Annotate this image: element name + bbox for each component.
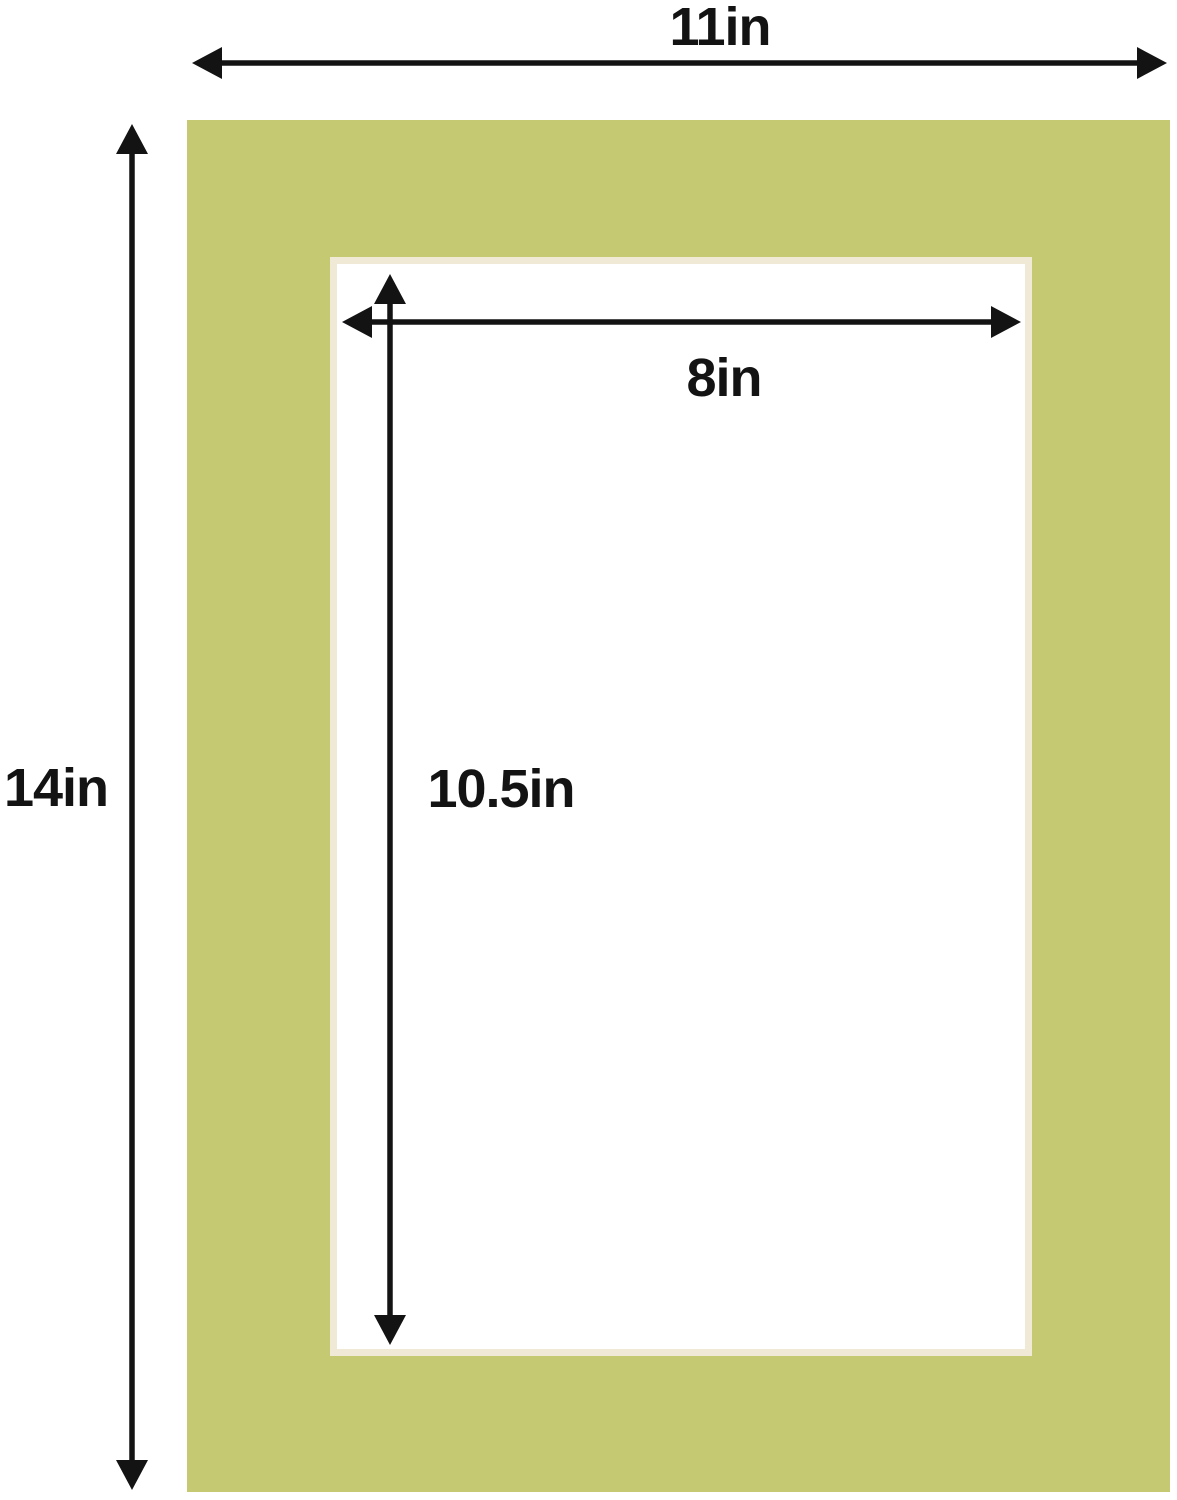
mat-board: [187, 120, 1170, 1492]
opening-height-label: 10.5in: [427, 758, 574, 820]
arrowhead-left-icon: [192, 47, 222, 79]
outer-height-label: 14in: [4, 757, 108, 819]
arrowhead-right-icon: [1137, 47, 1167, 79]
opening-width-label: 8in: [686, 347, 761, 409]
outer-height-arrow: [116, 124, 148, 1490]
arrowhead-down-icon: [116, 1460, 148, 1490]
arrowhead-up-icon: [116, 124, 148, 154]
outer-width-label: 11in: [669, 0, 770, 58]
mat-dimension-diagram: 11in 14in 8in 10.5in: [0, 0, 1177, 1500]
